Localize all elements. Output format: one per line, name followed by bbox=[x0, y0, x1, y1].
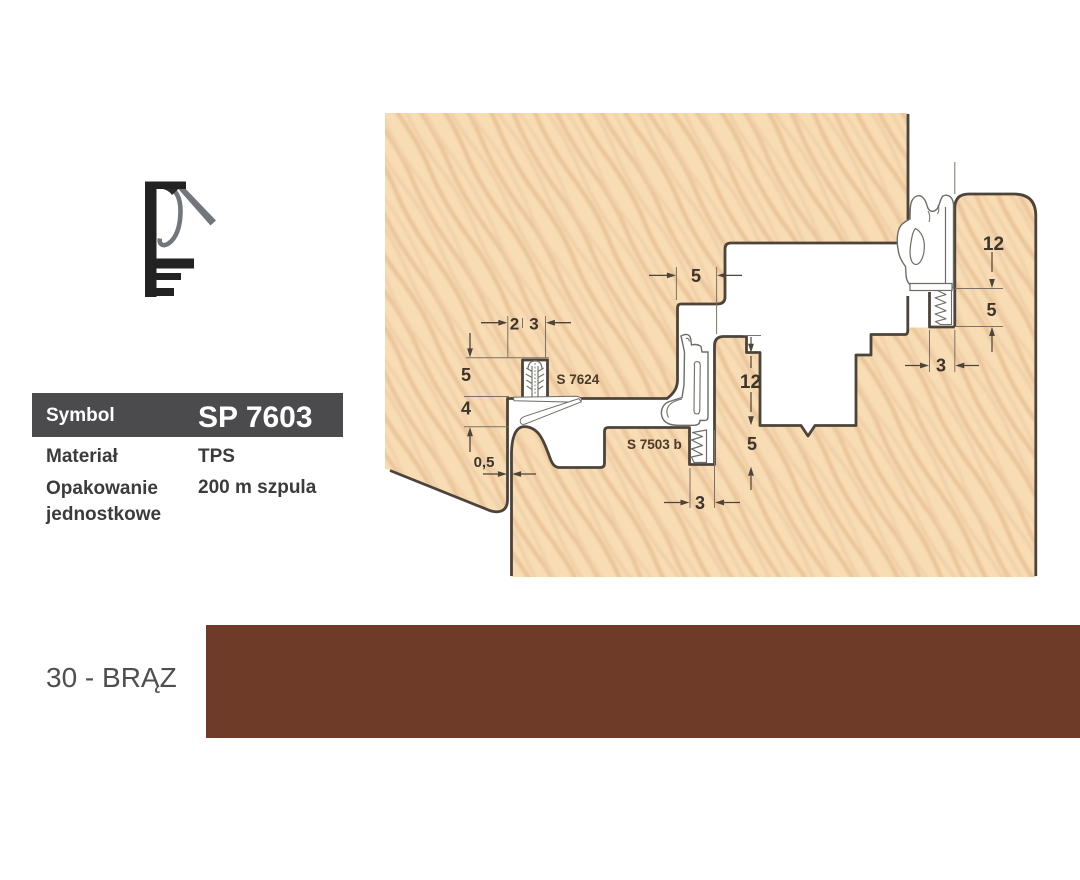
svg-text:3: 3 bbox=[695, 493, 705, 513]
svg-text:5: 5 bbox=[691, 266, 701, 286]
svg-text:4: 4 bbox=[461, 399, 471, 419]
svg-text:2: 2 bbox=[510, 315, 519, 334]
svg-text:12: 12 bbox=[740, 372, 761, 393]
svg-text:3: 3 bbox=[529, 315, 538, 334]
svg-text:5: 5 bbox=[747, 434, 757, 454]
svg-text:12: 12 bbox=[983, 234, 1004, 255]
svg-text:5: 5 bbox=[986, 300, 996, 320]
svg-text:S 7624: S 7624 bbox=[557, 372, 600, 387]
svg-text:0,5: 0,5 bbox=[474, 454, 495, 471]
svg-text:5: 5 bbox=[461, 365, 471, 385]
svg-text:S 7503 b: S 7503 b bbox=[627, 437, 682, 452]
svg-text:3: 3 bbox=[936, 356, 946, 376]
